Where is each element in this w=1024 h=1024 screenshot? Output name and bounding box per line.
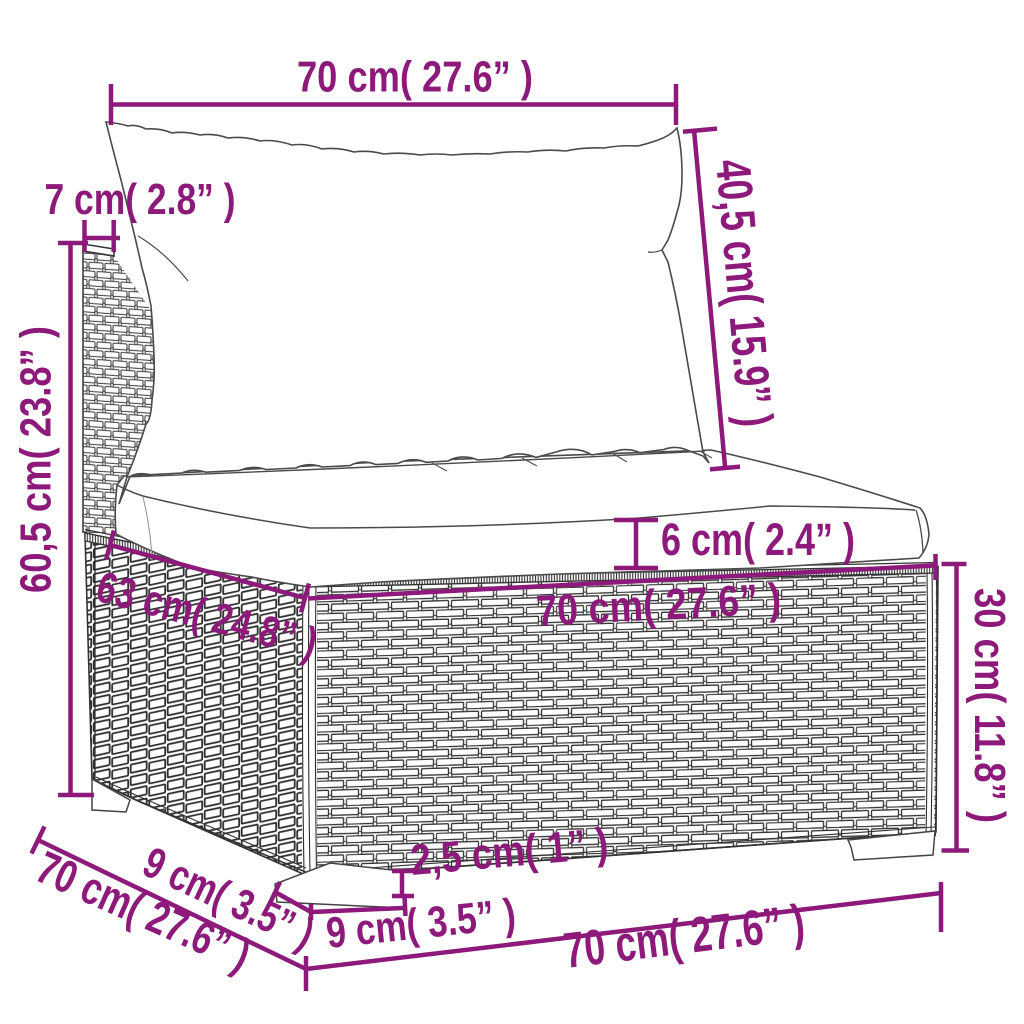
svg-text:30 cm( 11.8” ): 30 cm( 11.8” ) [965, 588, 1013, 823]
svg-text:70 cm( 27.6” ): 70 cm( 27.6” ) [297, 54, 533, 102]
svg-text:60,5 cm( 23.8” ): 60,5 cm( 23.8” ) [13, 326, 61, 593]
svg-text:6 cm( 2.4” ): 6 cm( 2.4” ) [661, 514, 855, 565]
svg-text:7 cm( 2.8” ): 7 cm( 2.8” ) [45, 176, 236, 224]
